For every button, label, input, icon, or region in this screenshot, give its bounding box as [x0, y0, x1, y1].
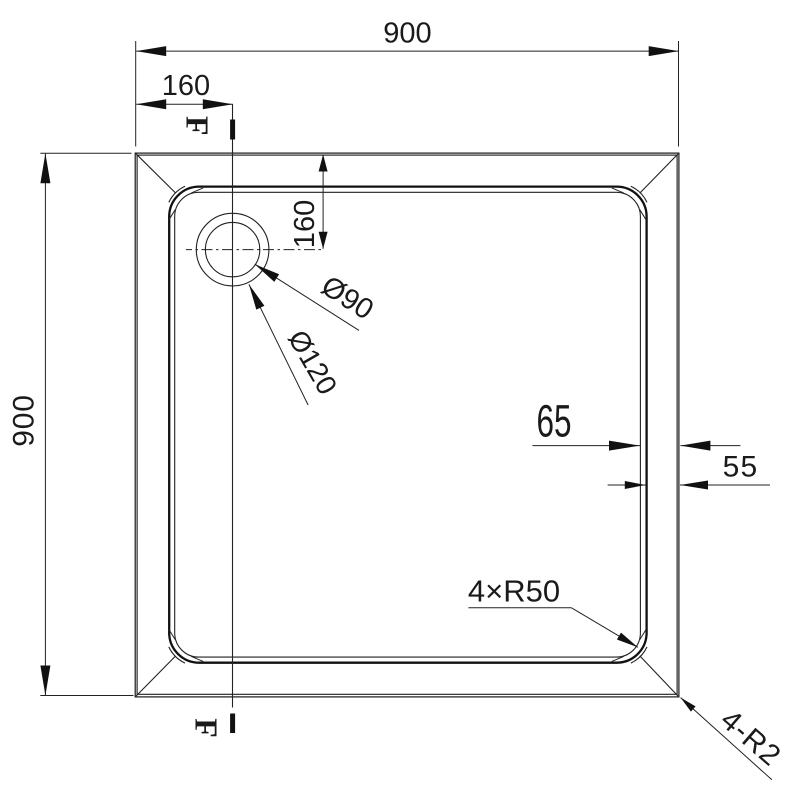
svg-text:900: 900: [383, 18, 431, 50]
svg-text:160: 160: [162, 70, 210, 102]
svg-text:55: 55: [723, 451, 759, 484]
svg-text:160: 160: [289, 200, 321, 248]
svg-text:F: F: [189, 718, 225, 738]
svg-text:900: 900: [8, 394, 41, 446]
svg-text:4×R50: 4×R50: [468, 574, 560, 609]
svg-text:65: 65: [536, 397, 571, 447]
svg-text:F: F: [179, 116, 215, 136]
